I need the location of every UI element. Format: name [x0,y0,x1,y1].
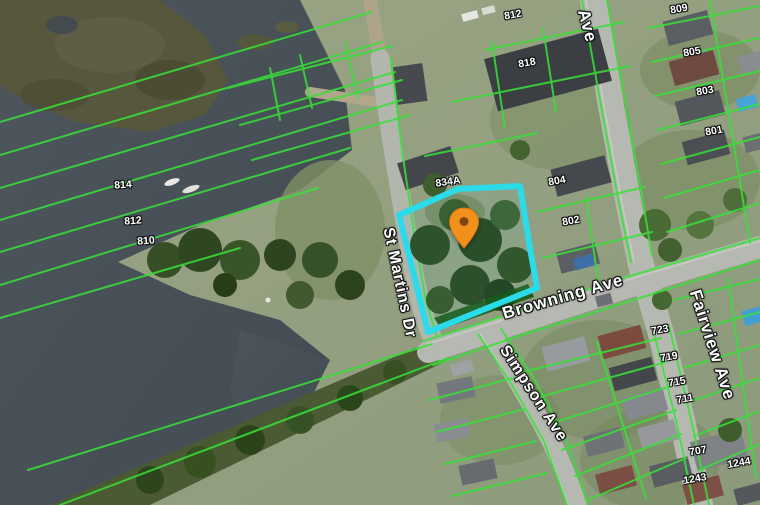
location-pin-icon [446,206,482,250]
map-viewport[interactable]: St Martins Dr Browning Ave Simpson Ave F… [0,0,760,505]
map-imagery [0,0,760,505]
location-pin[interactable] [446,206,482,250]
